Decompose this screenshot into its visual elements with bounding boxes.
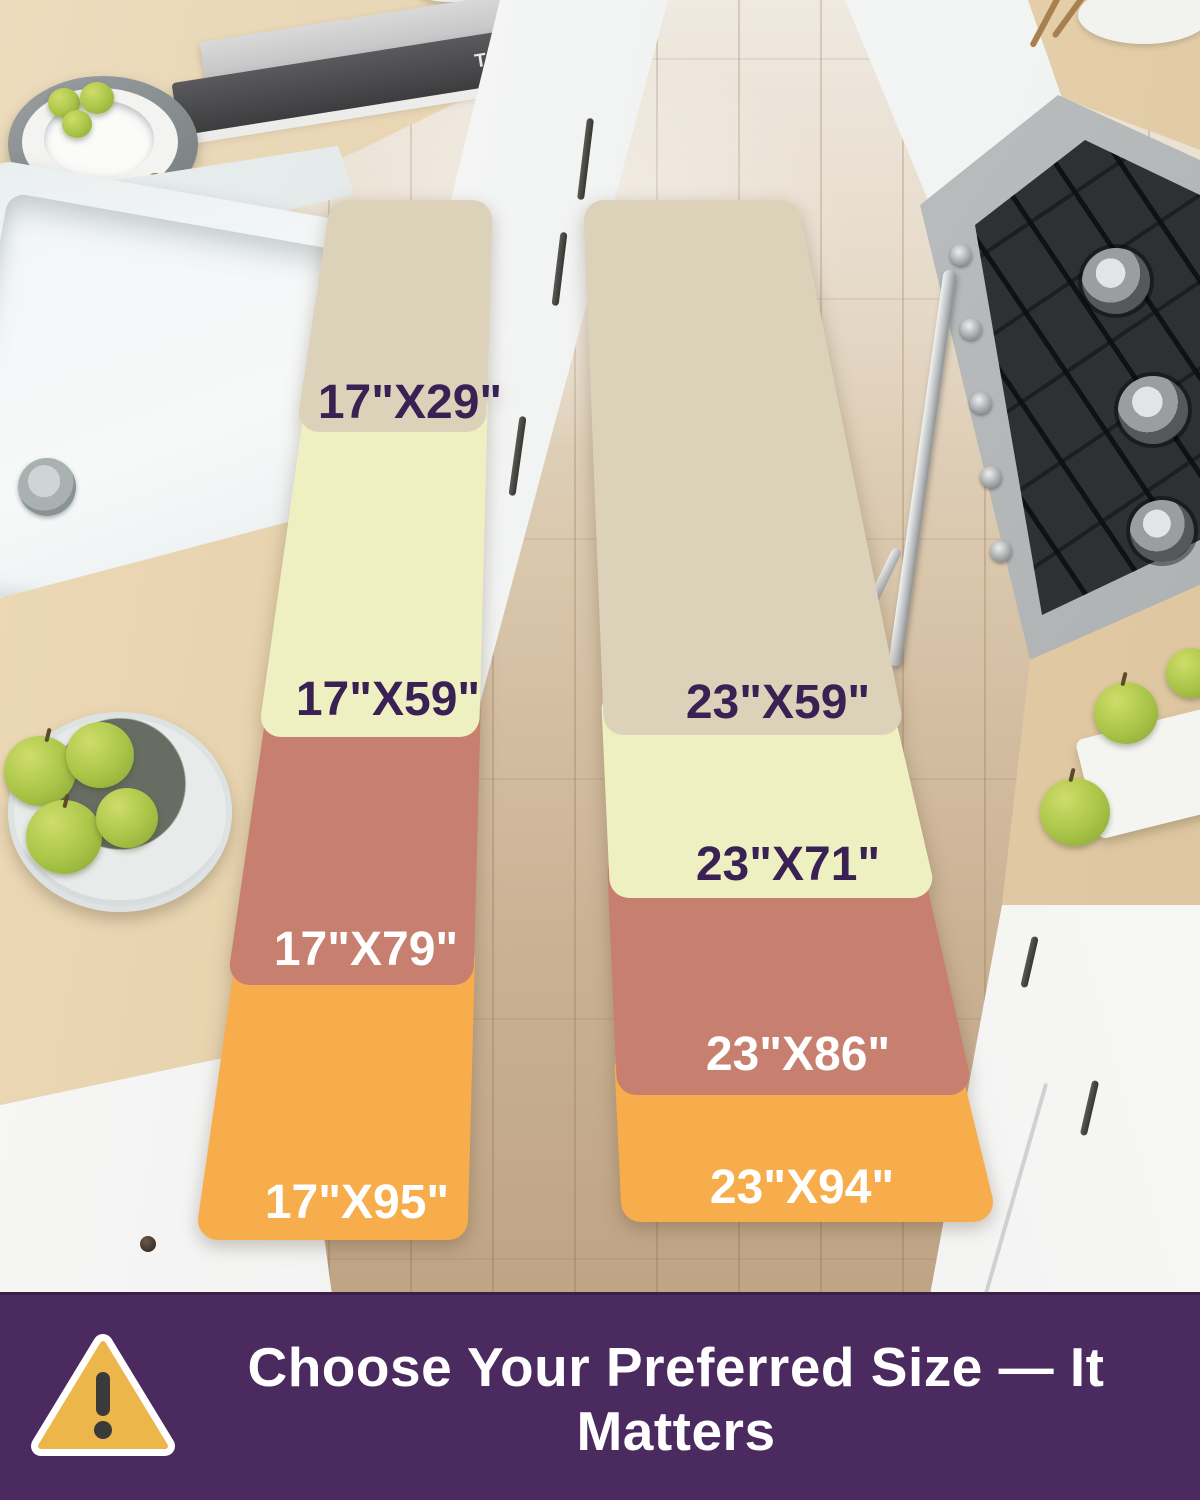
- right-mat-23in: 23"X59" 23"X71" 23"X86" 23"X94": [604, 220, 973, 1214]
- size-label-17x29: 17"X29": [318, 376, 502, 429]
- size-label-17x95: 17"X95": [265, 1176, 449, 1229]
- mat-segment-17x59: [281, 406, 468, 717]
- size-label-23x86: 23"X86": [706, 1028, 890, 1081]
- size-label-23x94: 23"X94": [710, 1161, 894, 1214]
- size-label-17x79: 17"X79": [274, 923, 458, 976]
- mat-size-overlay: 17"X29" 17"X59" 17"X79" 17"X95" 23"X59" …: [0, 0, 1200, 1500]
- warning-triangle-icon: [28, 1330, 178, 1468]
- size-label-23x71: 23"X71": [696, 838, 880, 891]
- bottom-banner: Choose Your Preferred Size — It Matters: [0, 1292, 1200, 1500]
- size-label-17x59: 17"X59": [296, 673, 480, 726]
- left-mat-17in: 17"X29" 17"X59" 17"X79" 17"X95": [218, 220, 502, 1229]
- product-size-guide-image: MAKING IT: [0, 0, 1200, 1500]
- size-label-23x59: 23"X59": [686, 676, 870, 729]
- mat-segment-23x59: [604, 220, 882, 715]
- banner-text: Choose Your Preferred Size — It Matters: [178, 1335, 1200, 1463]
